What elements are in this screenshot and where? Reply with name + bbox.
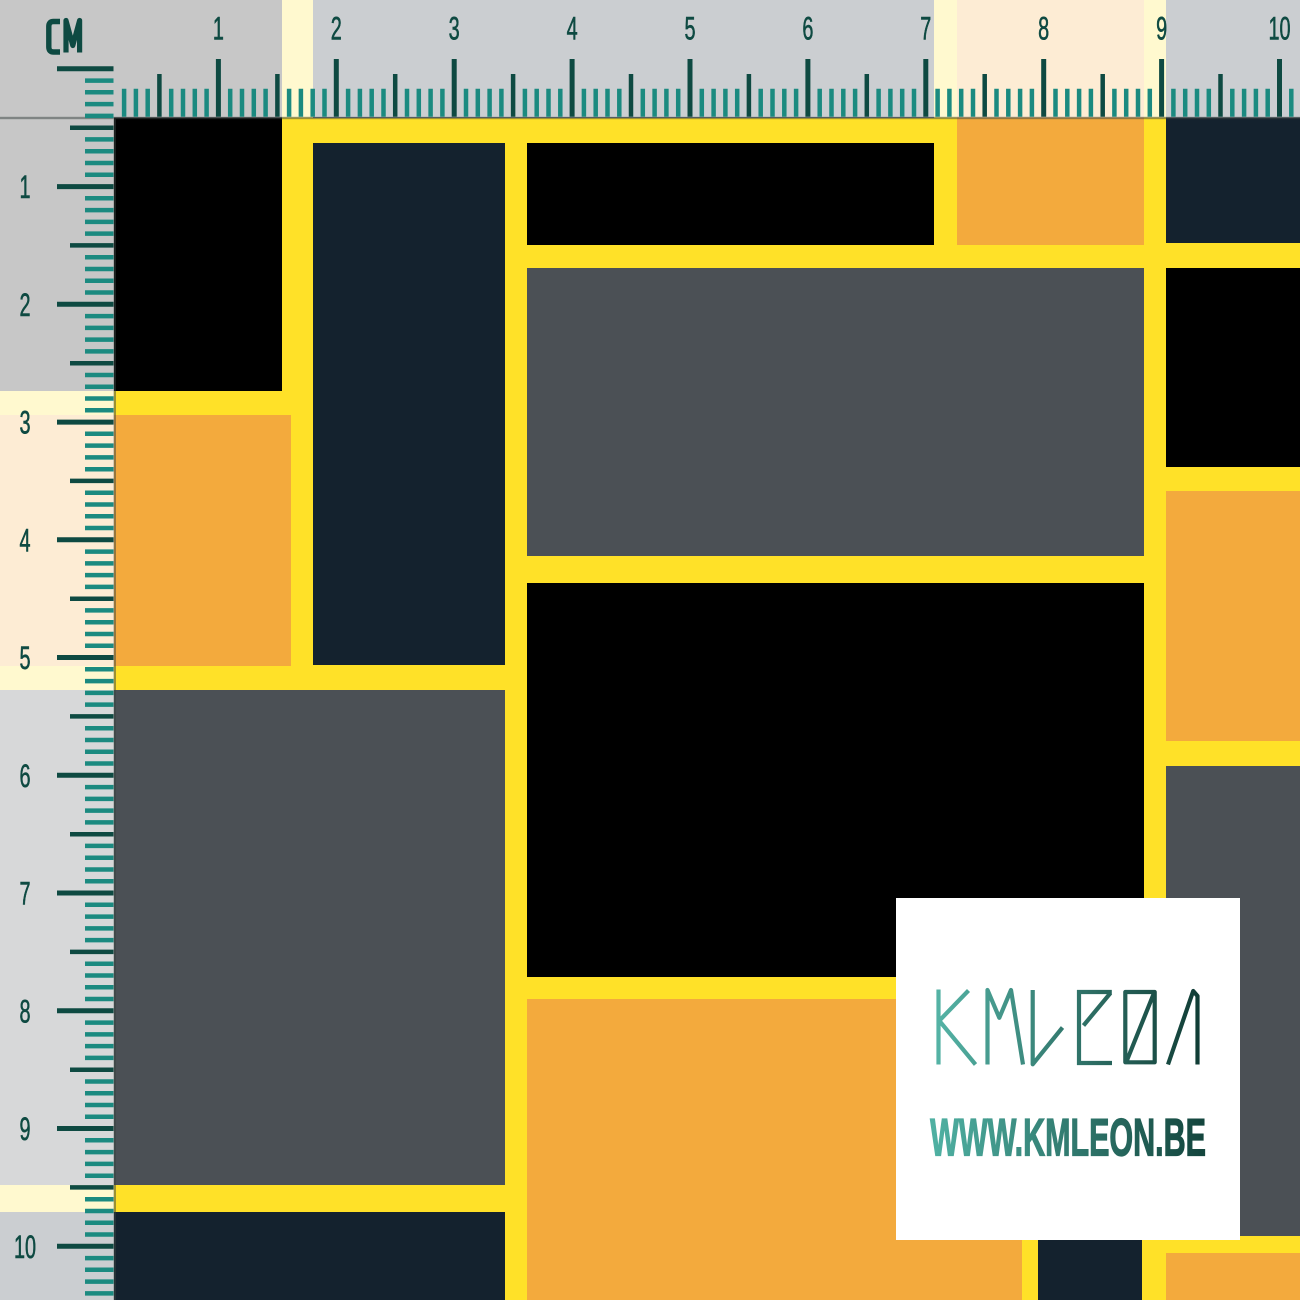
svg-text:9: 9	[1156, 11, 1167, 47]
svg-text:6: 6	[19, 758, 30, 794]
svg-text:10: 10	[1268, 11, 1290, 47]
svg-text:2: 2	[331, 11, 342, 47]
svg-text:3: 3	[19, 405, 30, 441]
svg-text:4: 4	[567, 11, 578, 47]
svg-text:8: 8	[1038, 11, 1049, 47]
svg-text:1: 1	[19, 169, 30, 205]
svg-text:5: 5	[684, 11, 695, 47]
svg-text:6: 6	[802, 11, 813, 47]
svg-text:10: 10	[14, 1229, 36, 1265]
svg-text:3: 3	[449, 11, 460, 47]
svg-text:9: 9	[19, 1111, 30, 1147]
svg-text:WWW.KMLEON.BE: WWW.KMLEON.BE	[930, 1109, 1206, 1168]
svg-text:4: 4	[19, 523, 30, 559]
svg-text:7: 7	[920, 11, 931, 47]
svg-text:2: 2	[19, 287, 30, 323]
svg-text:8: 8	[19, 994, 30, 1030]
svg-text:5: 5	[19, 640, 30, 676]
svg-text:1: 1	[213, 11, 224, 47]
svg-text:7: 7	[19, 876, 30, 912]
